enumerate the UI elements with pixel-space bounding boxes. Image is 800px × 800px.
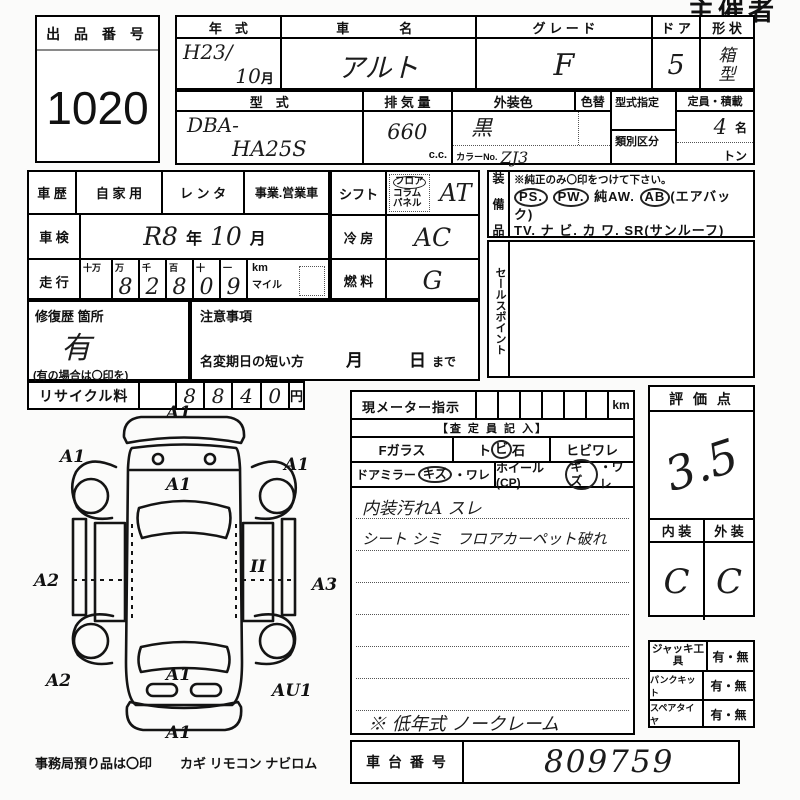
equipment-label: 装 備 品 bbox=[489, 172, 510, 236]
year-month-value: 10 bbox=[235, 64, 260, 88]
repair-history-box: 修復歴 箇所 有 (有の場合は〇印を) bbox=[27, 300, 190, 381]
inspection-year-unit: 年 bbox=[186, 225, 202, 249]
wheel-rear-left bbox=[74, 624, 108, 658]
odometer-digit-3: 8 bbox=[167, 275, 192, 299]
year-label: 年 式 bbox=[177, 17, 280, 39]
wheel-rear-right bbox=[260, 624, 294, 658]
odometer-digit-label-1: 万 bbox=[113, 260, 138, 275]
fuel-value: G bbox=[387, 260, 478, 301]
auction-number-label: 出 品 番 号 bbox=[37, 17, 158, 51]
sill-strip-left bbox=[73, 519, 86, 615]
equipment-tv: TV. bbox=[514, 223, 536, 238]
wheel-scratch-circled: キズ bbox=[565, 459, 597, 491]
stone-chip-circled: ビ bbox=[491, 440, 512, 459]
exterior-color-label: 外装色 bbox=[453, 92, 573, 110]
ac-value: AC bbox=[387, 216, 478, 258]
side-panel-left bbox=[95, 523, 125, 621]
ac-label: 冷 房 bbox=[332, 216, 387, 258]
odometer-digit-label-2: 千 bbox=[140, 260, 165, 275]
rating-box: 評 価 点 3.5 内 装 外 装 C C bbox=[648, 385, 755, 617]
chassis-number-label: 車 台 番 号 bbox=[352, 742, 464, 782]
auction-number-box: 出 品 番 号 1020 bbox=[35, 15, 160, 163]
jack-tools-value: 有・無 bbox=[708, 642, 753, 670]
displacement-unit: c.c. bbox=[429, 149, 447, 161]
shape-label: 形 状 bbox=[701, 17, 753, 39]
door-mirror-scratch-circled: キズ bbox=[418, 466, 452, 484]
footer-note: 事務局預り品は〇印 カギ リモコン ナビロム bbox=[35, 753, 317, 772]
meter-digit-cell bbox=[497, 392, 519, 418]
spare-tire-value: 有・無 bbox=[704, 701, 753, 727]
deadline-month-unit: 月 bbox=[346, 346, 363, 371]
washer-nozzle-left bbox=[153, 454, 163, 464]
class-category-label: 類別区分 bbox=[612, 131, 675, 151]
car-name-value: アルト bbox=[282, 39, 475, 92]
inspection-era-value: R8 bbox=[143, 222, 178, 251]
assessor-notes-area: 内装汚れA スレ シート シミ フロアカーペット破れ ※ 低年式 ノークレーム bbox=[352, 488, 633, 741]
model-code-prefix: DBA- bbox=[187, 113, 352, 137]
equipment-navi: ナ ビ. bbox=[541, 223, 578, 238]
shift-label: シフト bbox=[332, 172, 387, 214]
odometer-digit-1: 8 bbox=[113, 275, 138, 299]
meter-km-unit: km bbox=[607, 392, 633, 418]
meter-panel: 現メーター指示 km 【査 定 員 記 入】 Fガラス トビ石 ヒビワレ ドアミ… bbox=[350, 390, 635, 735]
odometer-digit-0 bbox=[81, 275, 111, 299]
assessor-note-3: ※ 低年式 ノークレーム bbox=[368, 710, 559, 736]
drivetrain-box: シフト フロア コラム パネル AT 冷 房 AC 燃 料 G bbox=[330, 170, 480, 300]
mile-checkbox bbox=[299, 266, 325, 296]
odometer-digit-label-3: 百 bbox=[167, 260, 192, 275]
history-table: 車 歴 自 家 用 レ ン タ 事業.営業車 車 検 R8 年 10 月 走 行… bbox=[27, 170, 330, 300]
shift-panel-option: パネル bbox=[393, 199, 426, 210]
inspection-label: 車 検 bbox=[29, 215, 81, 258]
rename-deadline-label: 名変期日の短い方 bbox=[200, 351, 304, 370]
damage-annotations: A1A1A1A1A2A3A2A1AU1A1II bbox=[32, 404, 337, 743]
displacement-value: 660 bbox=[364, 112, 451, 152]
equipment-aw: 純AW. bbox=[594, 189, 635, 204]
vehicle-row1: 年 式 H23/ 10月 車 名 アルト グ レ ー ド F ド ア 5 形 状… bbox=[175, 15, 755, 90]
color-no-label: カラーNo. bbox=[453, 153, 501, 162]
exterior-label: 外 装 bbox=[705, 520, 753, 541]
recolor-label: 色替 bbox=[574, 92, 611, 110]
shape-value: 箱型 bbox=[714, 39, 740, 92]
sales-point-label: セールスポイント bbox=[489, 242, 510, 376]
puncture-kit-label: パンクキット bbox=[650, 672, 704, 699]
door-value: 5 bbox=[653, 39, 699, 92]
auction-number-value: 1020 bbox=[37, 81, 158, 135]
odometer-digit-label-4: 十 bbox=[194, 260, 219, 275]
wheel-row: ホイール(CP) キズ ・ワレ bbox=[496, 463, 633, 486]
door-mirror-row: ドアミラー キズ ・ワレ bbox=[352, 463, 496, 486]
damage-code-label: A1 bbox=[58, 447, 85, 467]
damage-code-label: A1 bbox=[164, 404, 191, 423]
grade-label: グ レ ー ド bbox=[477, 17, 651, 39]
capacity-label: 定員・積載 bbox=[677, 92, 753, 112]
door-mirror-label: ドアミラー bbox=[356, 466, 416, 483]
grade-value: F bbox=[477, 39, 651, 92]
sales-point-content-empty bbox=[510, 242, 753, 376]
wheel-label: ホイール(CP) bbox=[496, 459, 563, 490]
caution-box: 注意事項 名変期日の短い方 月 日 まで bbox=[190, 300, 480, 381]
equipment-pw: PW. bbox=[553, 188, 590, 207]
door-mirror-crack-label: ・ワレ bbox=[454, 466, 490, 483]
interior-grade-value: C bbox=[650, 543, 705, 620]
history-business: 事業.営業車 bbox=[245, 172, 328, 213]
capacity-unit: 名 bbox=[735, 119, 747, 136]
damage-code-label: A2 bbox=[44, 671, 71, 691]
odometer-digit-4: 0 bbox=[194, 275, 219, 299]
mileage-label: 走 行 bbox=[29, 260, 81, 302]
sales-point-box: セールスポイント bbox=[487, 240, 755, 378]
damage-code-label: II bbox=[249, 557, 267, 577]
damage-code-label: A3 bbox=[310, 575, 337, 595]
door-label: ド ア bbox=[653, 17, 699, 39]
sill-strip-right bbox=[282, 519, 295, 615]
year-value: H23/ bbox=[183, 40, 274, 64]
rating-score-value: 3.5 bbox=[658, 428, 744, 502]
current-meter-label: 現メーター指示 bbox=[352, 392, 475, 418]
year-month-unit: 月 bbox=[261, 71, 274, 86]
damage-code-label: A2 bbox=[32, 571, 59, 591]
meter-digit-cell bbox=[541, 392, 563, 418]
interior-label: 内 装 bbox=[650, 520, 705, 541]
rear-light-right bbox=[191, 684, 221, 696]
wheel-crack-label: ・ワレ bbox=[600, 458, 633, 492]
fuel-label: 燃 料 bbox=[332, 260, 387, 301]
damage-code-label: AU1 bbox=[270, 681, 312, 701]
damage-code-label: A1 bbox=[164, 723, 191, 743]
spare-tire-label: スペアタイヤ bbox=[650, 701, 704, 727]
windshield bbox=[138, 501, 231, 538]
meter-digit-cell bbox=[585, 392, 607, 418]
tools-box: ジャッキ工具 有・無 パンクキット 有・無 スペアタイヤ 有・無 bbox=[648, 640, 755, 728]
meter-digit-cell bbox=[519, 392, 541, 418]
odometer-digit-label-0: 十万 bbox=[81, 260, 111, 275]
model-code-value: HA25S bbox=[187, 137, 352, 161]
history-private: 自 家 用 bbox=[77, 172, 163, 213]
vehicle-row2: 型 式 DBA- HA25S 排 気 量 660 c.c. 外装色 色替 黒 カ… bbox=[175, 90, 755, 165]
repair-history-value: 有 bbox=[29, 323, 188, 367]
equipment-ab: AB bbox=[640, 188, 671, 207]
stone-chip-label: トビ石 bbox=[454, 438, 551, 461]
front-glass-label: Fガラス bbox=[352, 438, 454, 461]
model-code-label: 型 式 bbox=[177, 92, 362, 112]
history-label: 車 歴 bbox=[29, 172, 77, 213]
meter-digit-cell bbox=[475, 392, 497, 418]
jack-tools-label: ジャッキ工具 bbox=[650, 642, 708, 670]
rating-label: 評 価 点 bbox=[650, 387, 753, 412]
puncture-kit-value: 有・無 bbox=[704, 672, 753, 699]
assessor-entry-label: 【査 定 員 記 入】 bbox=[352, 418, 633, 438]
equipment-box: 装 備 品 ※純正のみ〇印をつけて下さい。 PS. PW. 純AW. AB(エア… bbox=[487, 170, 755, 238]
damage-code-label: A1 bbox=[164, 475, 191, 495]
recolor-value-empty bbox=[578, 112, 610, 145]
damage-code-label: A1 bbox=[282, 455, 309, 475]
assessor-note-1: 内装汚れA スレ bbox=[362, 494, 482, 519]
equipment-kawa: カ ワ. bbox=[583, 223, 620, 238]
exterior-color-value: 黒 bbox=[471, 116, 492, 140]
shift-value: AT bbox=[440, 179, 472, 207]
history-rental: レ ン タ bbox=[163, 172, 245, 213]
damage-code-label: A1 bbox=[164, 665, 191, 685]
assessor-note-2: シート シミ フロアカーペット破れ bbox=[362, 528, 607, 549]
chassis-number-row: 車 台 番 号 809759 bbox=[350, 740, 740, 784]
color-no-value: ZJ3 bbox=[501, 148, 529, 167]
washer-nozzle-right bbox=[205, 454, 215, 464]
deadline-made-label: まで bbox=[432, 353, 456, 370]
rear-light-left bbox=[147, 684, 177, 696]
inspection-month-unit: 月 bbox=[250, 225, 266, 249]
chassis-number-value: 809759 bbox=[544, 744, 674, 780]
car-top-view: A1A1A1A1A2A3A2A1AU1A1II bbox=[28, 404, 340, 744]
fender-front-left bbox=[72, 462, 116, 519]
car-name-label: 車 名 bbox=[282, 17, 475, 39]
car-damage-diagram: A1A1A1A1A2A3A2A1AU1A1II bbox=[28, 404, 340, 744]
shift-floor-option: フロア bbox=[393, 176, 426, 189]
caution-label: 注意事項 bbox=[192, 302, 478, 329]
equipment-ps: PS. bbox=[514, 188, 548, 207]
odometer-digit-2: 2 bbox=[140, 275, 165, 299]
office-deposit-label: 事務局預り品は〇印 bbox=[35, 753, 152, 772]
deposit-items-label: カギ リモコン ナビロム bbox=[180, 753, 317, 772]
type-designation-label: 型式指定 bbox=[612, 92, 675, 112]
odometer-digit-5: 9 bbox=[221, 275, 246, 299]
odometer-digit-label-5: 一 bbox=[221, 260, 246, 275]
meter-digit-cell bbox=[563, 392, 585, 418]
exterior-grade-value: C bbox=[705, 543, 753, 620]
equipment-note: ※純正のみ〇印をつけて下さい。 bbox=[514, 174, 749, 188]
equipment-sr: SR(サンルーフ) bbox=[624, 223, 724, 238]
capacity-value: 4 bbox=[714, 115, 727, 139]
inspection-month-value: 10 bbox=[210, 222, 242, 251]
ton-unit: トン bbox=[723, 147, 747, 164]
deadline-day-unit: 日 bbox=[409, 346, 426, 371]
displacement-label: 排 気 量 bbox=[364, 92, 451, 112]
